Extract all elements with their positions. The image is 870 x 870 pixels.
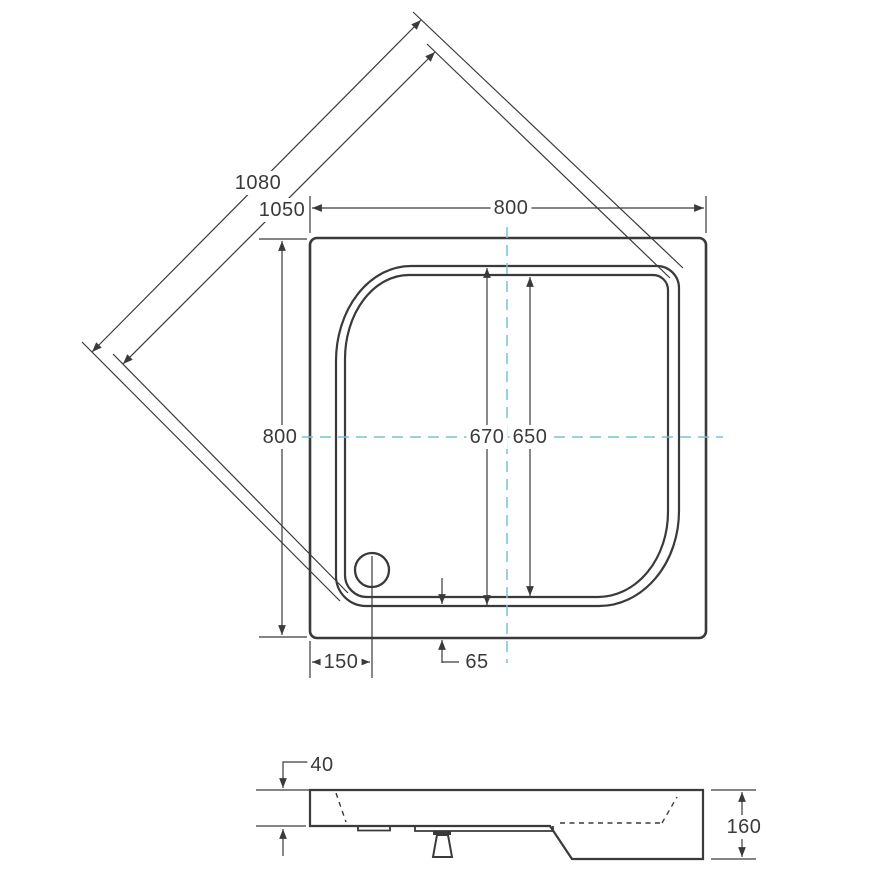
drawing-linework bbox=[0, 0, 870, 870]
dim-label-rim-to-edge: 65 bbox=[462, 650, 491, 674]
dim-line-edge-height-upper bbox=[283, 762, 308, 788]
tray-outer-outline bbox=[310, 238, 706, 638]
ext-line-diagonal-inner-top bbox=[427, 44, 670, 278]
drain-trap bbox=[433, 835, 452, 857]
dim-label-total-height: 160 bbox=[724, 815, 765, 839]
ext-line-diagonal-inner-bottom bbox=[113, 354, 348, 593]
dim-label-edge-height: 40 bbox=[307, 753, 336, 777]
dim-label-basin-outer: 670 bbox=[467, 425, 508, 449]
ext-line-diagonal-outer-top bbox=[413, 12, 683, 268]
dim-label-left-height: 800 bbox=[260, 425, 301, 449]
hidden-edge-left bbox=[336, 793, 346, 822]
ext-line-diagonal-outer-bottom bbox=[82, 342, 340, 601]
dim-label-top-width: 800 bbox=[491, 196, 532, 220]
dim-label-diagonal-outer: 1080 bbox=[232, 171, 285, 195]
top-view bbox=[82, 12, 723, 678]
side-profile-outline bbox=[310, 790, 703, 859]
top-view-dimensions bbox=[82, 12, 706, 678]
dim-label-basin-inner: 650 bbox=[510, 425, 551, 449]
hidden-edge-right bbox=[662, 797, 677, 823]
shower-tray-technical-drawing: 1080 1050 800 800 670 650 150 65 40 160 bbox=[0, 0, 870, 870]
hidden-edges bbox=[336, 793, 677, 823]
dim-label-drain-offset: 150 bbox=[321, 650, 362, 674]
dim-label-diagonal-inner: 1050 bbox=[256, 198, 309, 222]
